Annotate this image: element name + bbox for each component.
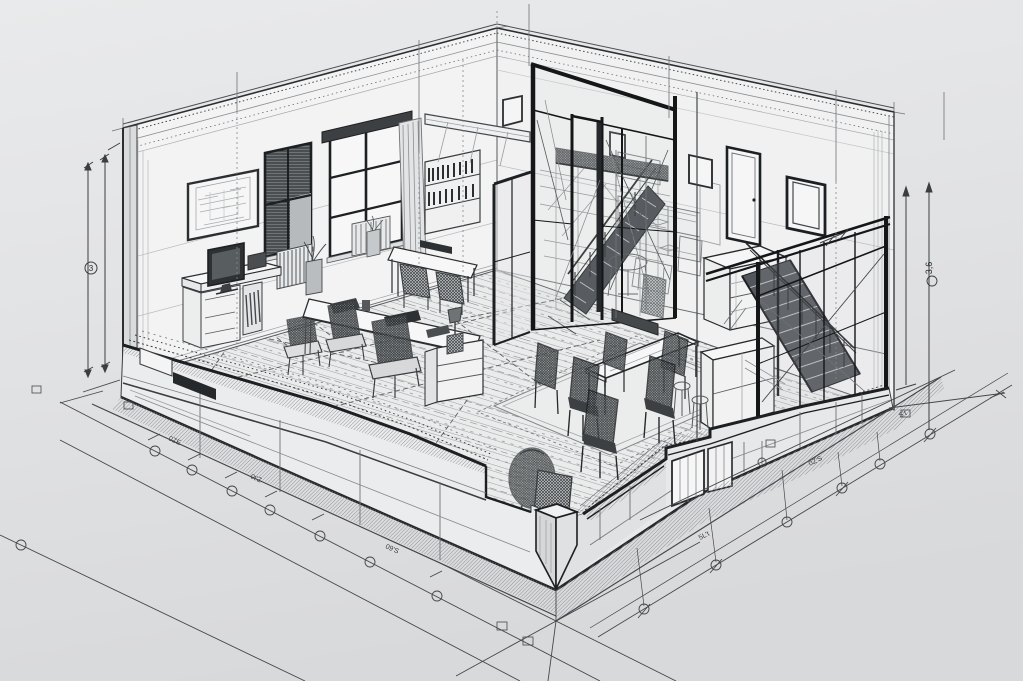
svg-text:3: 3 [89,264,94,273]
svg-text:3,6: 3,6 [924,262,934,275]
